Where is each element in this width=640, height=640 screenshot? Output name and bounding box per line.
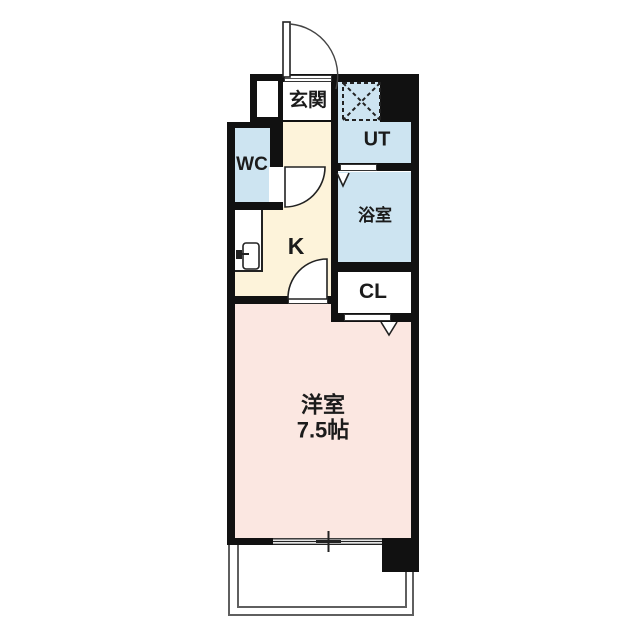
- utility-label: UT: [364, 129, 391, 152]
- western-room-label: 洋室 7.5帖: [297, 393, 350, 444]
- sliding-window-icon: [273, 531, 382, 552]
- genkan-label: 玄関: [289, 90, 327, 112]
- kitchen-sink-icon: [236, 243, 259, 269]
- western-room-name: 洋室: [297, 393, 350, 418]
- kitchen-door-swing-icon: [288, 259, 327, 299]
- bathroom-folding-door-icon: [337, 173, 349, 186]
- wc-door-swing-icon: [285, 167, 325, 207]
- kitchen-label: K: [288, 233, 305, 259]
- toilet-label: WC: [236, 154, 268, 176]
- closet-folding-door-icon: [381, 322, 397, 335]
- closet-label: CL: [359, 280, 387, 304]
- floorplan-canvas: 玄関 UT WC 浴室 K CL 洋室 7.5帖: [0, 0, 640, 640]
- bathroom-label: 浴室: [358, 206, 392, 226]
- western-room-size: 7.5帖: [297, 418, 350, 443]
- washing-machine-pan-icon: [343, 83, 380, 120]
